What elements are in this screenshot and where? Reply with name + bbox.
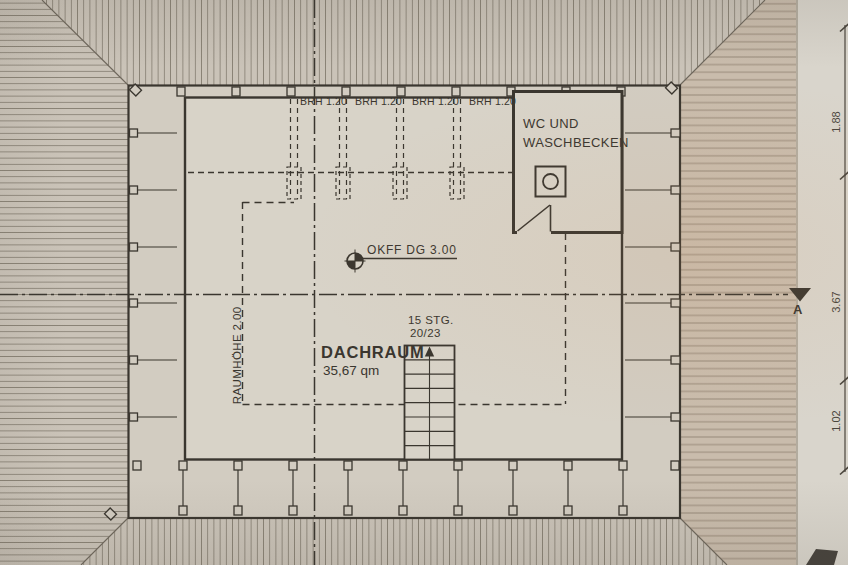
stairs-riser-label: 20/23 <box>410 327 441 340</box>
level-marker-label: OKFF DG 3.00 <box>367 244 457 257</box>
wc-room-label: WC UND WASCHBECKEN <box>523 115 629 152</box>
roof-plane-bottom <box>81 518 727 565</box>
wc-room-outline <box>514 92 623 233</box>
roof-plane-left <box>0 0 128 565</box>
wc-label-line2: WASCHBECKEN <box>523 134 629 153</box>
roof-plane-top <box>42 0 765 85</box>
dimension-label: 1.02 <box>830 401 842 441</box>
window-parapet-label: BRH 1.20 <box>300 96 347 108</box>
wc-room <box>514 92 623 233</box>
dimension-label: 3.67 <box>830 282 842 322</box>
dimension-label: 1.88 <box>830 102 842 142</box>
room-height-label: RAUMHÖHE 2.00 <box>231 300 244 410</box>
window-parapet-label: BRH 1.20 <box>412 96 459 108</box>
stairs-count-label: 15 STG. <box>408 314 454 327</box>
window-parapet-label: BRH 1.20 <box>355 96 402 108</box>
window-parapet-label: BRH 1.20 <box>469 96 516 108</box>
wc-label-line1: WC UND <box>523 115 629 134</box>
room-name-label: DACHRAUM <box>321 343 425 361</box>
section-marker-label: A <box>793 303 802 317</box>
stairs <box>405 346 455 460</box>
floor-plan-sheet: BRH 1.20 BRH 1.20 BRH 1.20 BRH 1.20 WC U… <box>0 0 848 565</box>
plan-linework <box>0 0 848 565</box>
room-area-label: 35,67 qm <box>323 364 379 379</box>
